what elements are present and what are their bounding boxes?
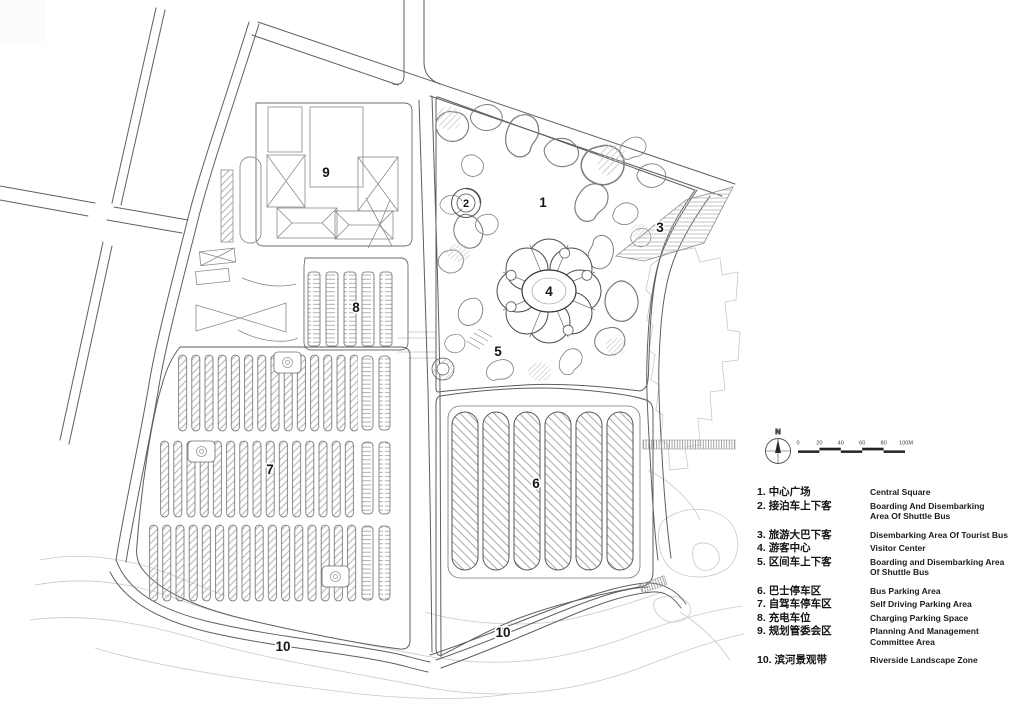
scale-tick-60: 60: [859, 441, 865, 447]
plan-label-5: 5: [494, 344, 502, 359]
legend-item-riverside: 10. 滨河景观带 Riverside Landscape Zone: [757, 654, 1019, 667]
scale-tick-0: 0: [796, 441, 799, 447]
parking7-charging-columns: [362, 356, 390, 600]
legend-item-interval-shuttle: 5. 区间车上下客 Boarding and Disembarking Area…: [757, 556, 1019, 578]
legend-item-shuttle-boarding: 2. 接泊车上下客 Boarding And Disembarking Area…: [757, 500, 1019, 522]
legend-num: 6.: [757, 585, 766, 597]
parking7-band-bottom: [147, 522, 358, 604]
plan-label-7: 7: [266, 462, 274, 477]
legend-num: 9.: [757, 625, 766, 637]
legend: 1. 中心广场 Central Square 2. 接泊车上下客 Boardin…: [757, 486, 1019, 668]
context-ponds: [648, 470, 738, 622]
central-park: [431, 97, 733, 392]
scale-tick-40: 40: [838, 441, 844, 447]
legend-en: Bus Parking Area: [870, 585, 1019, 597]
scale-tick-20: 20: [816, 441, 822, 447]
parking-area-7: [137, 347, 410, 649]
parking7-band-top: [176, 352, 358, 434]
plan-label-10-east: 10: [495, 625, 510, 640]
legend-item-visitor-center: 4. 游客中心 Visitor Center: [757, 542, 1019, 555]
legend-en: Boarding and Disembarking Area Of Shuttl…: [870, 556, 1019, 578]
legend-item-tourist-bus: 3. 旅游大巴下客 Disembarking Area Of Tourist B…: [757, 529, 1019, 542]
plan-label-2: 2: [463, 198, 469, 210]
legend-zh: 游客中心: [769, 542, 811, 554]
legend-num: 4.: [757, 542, 766, 554]
north-arrow-icon: N: [766, 427, 791, 464]
legend-num: 10.: [757, 654, 772, 666]
hedge-strip: [221, 170, 233, 242]
legend-zh: 中心广场: [769, 486, 811, 498]
legend-item-committee: 9. 规划管委会区 Planning And Management Commit…: [757, 625, 1019, 647]
scale-bar: 0 20 40 60 80 100M: [796, 441, 913, 453]
legend-num: 3.: [757, 529, 766, 541]
legend-zh: 滨河景观带: [775, 654, 828, 666]
plan-label-8: 8: [352, 300, 360, 315]
plan-label-6: 6: [532, 476, 540, 491]
legend-en: Central Square: [870, 486, 1019, 498]
legend-num: 5.: [757, 556, 766, 568]
parking-area-6: [436, 388, 653, 655]
legend-en: Boarding And Disembarking Area Of Shuttl…: [870, 500, 1019, 522]
committee-area-9: [221, 103, 412, 248]
drop-off-area-3: [616, 187, 733, 261]
plan-label-1: 1: [539, 195, 547, 210]
plan-label-10-west: 10: [275, 639, 290, 654]
north-label: N: [775, 427, 780, 436]
scale-tick-80: 80: [880, 441, 886, 447]
legend-en: Planning And Management Committee Area: [870, 625, 1019, 647]
plan-label-9: 9: [322, 165, 330, 180]
legend-zh: 充电车位: [769, 612, 811, 624]
legend-item-self-driving: 7. 自驾车停车区 Self Driving Parking Area: [757, 598, 1019, 611]
legend-en: Visitor Center: [870, 542, 1019, 554]
context-settlement: [646, 248, 740, 470]
scale-tick-100: 100M: [899, 441, 913, 447]
legend-en: Disembarking Area Of Tourist Bus: [870, 529, 1019, 541]
legend-num: 8.: [757, 612, 766, 624]
legend-item-central-square: 1. 中心广场 Central Square: [757, 486, 1019, 499]
legend-zh: 规划管委会区: [769, 625, 832, 637]
bus-bays: [452, 412, 633, 570]
plan-label-4: 4: [545, 284, 553, 299]
entrance-structures: [195, 248, 298, 341]
legend-en: Riverside Landscape Zone: [870, 654, 1019, 666]
legend-en: Self Driving Parking Area: [870, 598, 1019, 610]
context-crossings: [398, 332, 436, 358]
legend-zh: 自驾车停车区: [769, 598, 832, 610]
charging-rows: [308, 272, 392, 346]
legend-item-bus-parking: 6. 巴士停车区 Bus Parking Area: [757, 585, 1019, 598]
legend-num: 1.: [757, 486, 766, 498]
legend-num: 2.: [757, 500, 766, 512]
legend-zh: 旅游大巴下客: [769, 529, 832, 541]
site-plan-page: N 0 20 40 60 80 100M 1 2 3 4 5 6 7 8 9 1…: [0, 0, 1031, 723]
plan-label-3: 3: [656, 220, 664, 235]
corner-artifact: [0, 0, 46, 46]
legend-item-charging: 8. 充电车位 Charging Parking Space: [757, 612, 1019, 625]
scale-bar-segments: [798, 448, 905, 453]
legend-zh: 巴士停车区: [769, 585, 822, 597]
legend-en: Charging Parking Space: [870, 612, 1019, 624]
legend-zh: 区间车上下客: [769, 556, 832, 568]
legend-zh: 接泊车上下客: [769, 500, 832, 512]
legend-num: 7.: [757, 598, 766, 610]
committee-buildings: [267, 155, 398, 248]
